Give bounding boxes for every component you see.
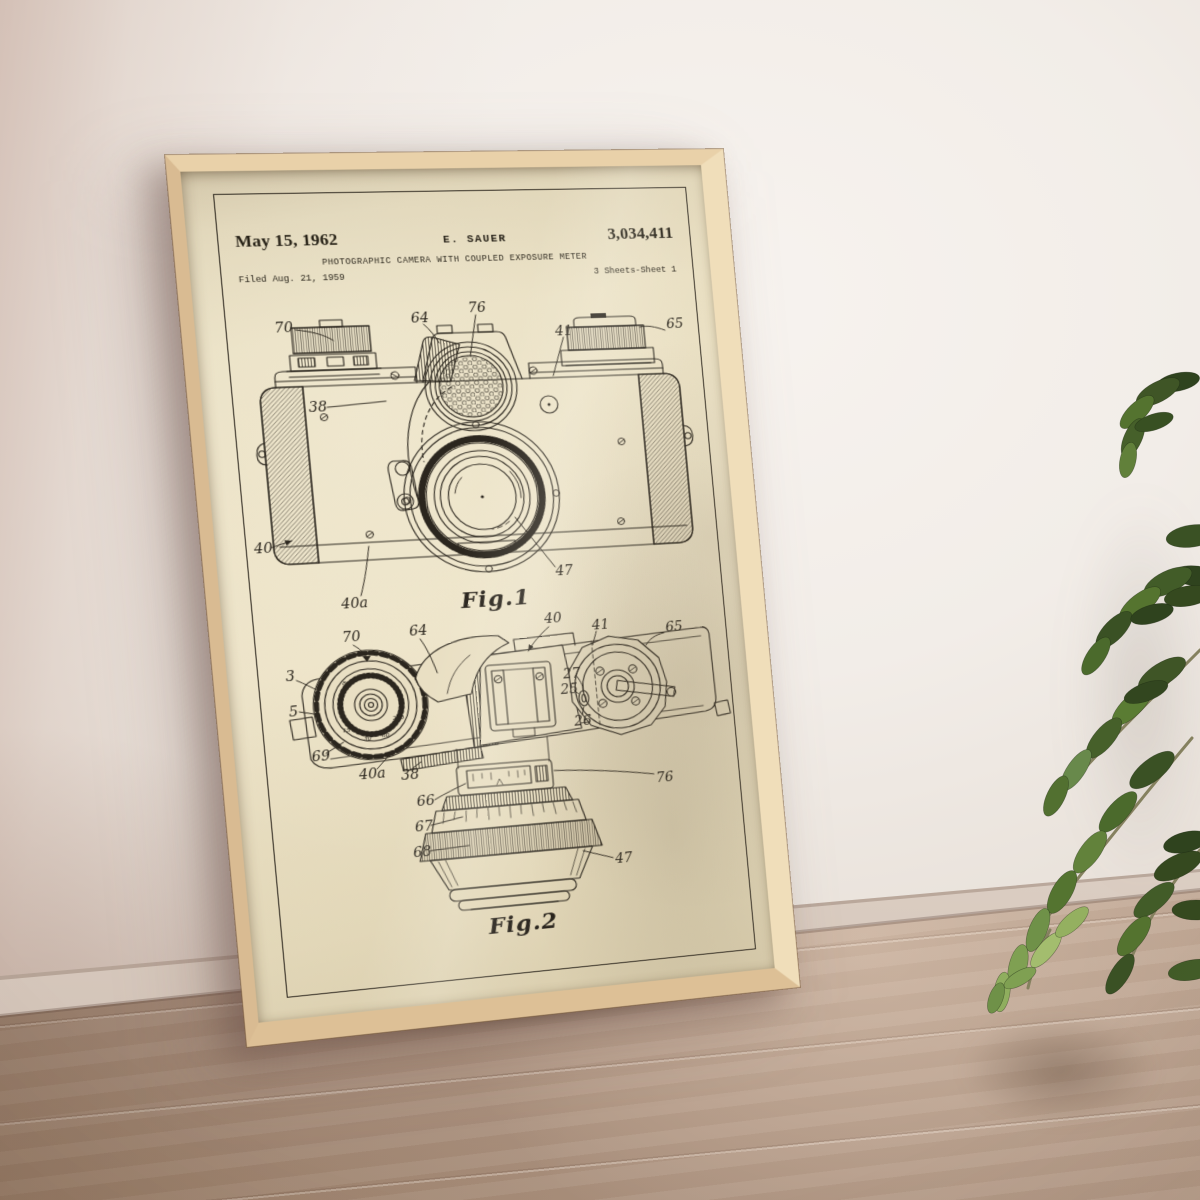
fig2-dial-number: 60 xyxy=(382,732,390,739)
fig2-dial-number: 15 xyxy=(342,727,350,734)
fig2-label-67: 67 xyxy=(414,819,434,836)
camera-front-drawing xyxy=(245,309,706,601)
fig1-label-38: 38 xyxy=(308,400,328,416)
framed-patent-poster: May 15, 1962 E. SAUER 3,034,411 PHOTOGRA… xyxy=(165,149,800,1047)
fig2-label-76: 76 xyxy=(656,770,674,786)
patent-inventor: E. SAUER xyxy=(443,234,508,247)
fig1-label-40a: 40a xyxy=(340,596,369,613)
fig1-label-47: 47 xyxy=(554,563,574,579)
fig2-label-3: 3 xyxy=(285,669,296,685)
fig1-label-64: 64 xyxy=(410,311,429,326)
fig2-label-68: 68 xyxy=(413,844,432,861)
fig2-label-70: 70 xyxy=(342,630,362,646)
camera-top-drawing xyxy=(283,616,747,926)
room-scene: May 15, 1962 E. SAUER 3,034,411 PHOTOGRA… xyxy=(0,0,1200,1200)
fig1-label-76: 76 xyxy=(467,301,486,316)
fig1-label-65: 65 xyxy=(666,317,684,332)
fig2-label-38: 38 xyxy=(400,767,419,783)
fig2-label-66: 66 xyxy=(416,793,435,809)
fig2-label-69: 69 xyxy=(311,749,331,766)
fig2-label-5: 5 xyxy=(288,705,299,721)
fig2-label-27: 27 xyxy=(561,666,581,682)
figure-2-top-view: 70 64 40 41 65 3 5 69 40a 38 27 25 26 76… xyxy=(256,597,751,961)
patent-number: 3,034,411 xyxy=(607,224,674,244)
plant xyxy=(900,330,1200,1090)
fig2-label-64: 64 xyxy=(409,623,428,639)
patent-paper: May 15, 1962 E. SAUER 3,034,411 PHOTOGRA… xyxy=(180,165,774,1023)
fig2-label-47: 47 xyxy=(614,851,634,867)
fig2-label-26: 26 xyxy=(573,713,593,729)
fig1-label-41: 41 xyxy=(553,324,573,339)
fig2-label-25: 25 xyxy=(559,682,579,698)
fig2-label-40a: 40a xyxy=(357,766,386,783)
fig1-label-40: 40 xyxy=(252,541,273,557)
fig1-label-70: 70 xyxy=(274,321,294,337)
fig2-label-40: 40 xyxy=(543,611,563,627)
fig2-dial-number: 8 xyxy=(342,680,347,687)
fig2-label-65: 65 xyxy=(665,619,683,635)
fig2-dial-number: 30 xyxy=(364,735,372,742)
fig2-caption: Fig.2 xyxy=(487,907,560,940)
fig2-dial-number: 250 xyxy=(392,714,405,721)
fig2-label-41: 41 xyxy=(590,618,610,634)
figure-1-front-view: 70 64 76 41 65 38 40 40a 47 Fig.1 xyxy=(226,288,722,626)
plant-leaves xyxy=(984,369,1200,1016)
patent-date: May 15, 1962 xyxy=(234,230,338,252)
